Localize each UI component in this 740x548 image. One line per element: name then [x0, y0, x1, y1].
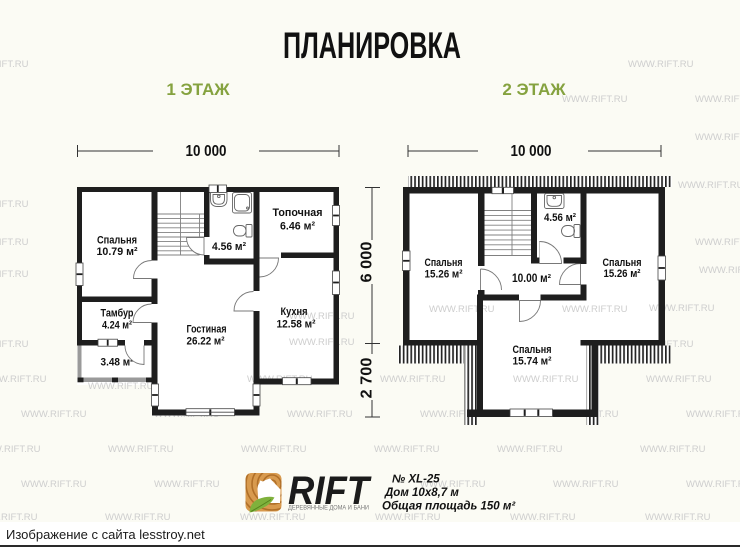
svg-text:2 ЭТАЖ: 2 ЭТАЖ — [502, 80, 566, 99]
svg-text:6.46 м²: 6.46 м² — [280, 221, 315, 233]
svg-text:3.48 м²: 3.48 м² — [101, 357, 134, 369]
svg-text:WWW.RIFT.RU: WWW.RIFT.RU — [699, 265, 740, 276]
svg-text:WWW.RIFT.RU: WWW.RIFT.RU — [240, 512, 306, 523]
svg-text:WWW.RIFT.RU: WWW.RIFT.RU — [695, 132, 740, 143]
svg-text:Тамбур: Тамбур — [101, 308, 134, 320]
svg-text:Дом 10х8,7 м: Дом 10х8,7 м — [384, 487, 459, 499]
svg-text:6 000: 6 000 — [359, 242, 376, 283]
svg-text:WWW.RIFT.RU: WWW.RIFT.RU — [628, 59, 694, 70]
svg-text:WWW.RIFT.RU: WWW.RIFT.RU — [0, 444, 41, 455]
svg-text:WWW.RIFT.RU: WWW.RIFT.RU — [646, 374, 712, 385]
svg-text:15.74 м²: 15.74 м² — [513, 356, 552, 368]
svg-text:Топочная: Топочная — [273, 207, 323, 219]
svg-text:WWW.RIFT.RU: WWW.RIFT.RU — [0, 59, 29, 70]
svg-text:WWW.RIFT.RU: WWW.RIFT.RU — [21, 409, 87, 420]
svg-text:WWW.RIFT.RU: WWW.RIFT.RU — [513, 374, 579, 385]
svg-text:WWW.RIFT.RU: WWW.RIFT.RU — [108, 444, 174, 455]
svg-text:WWW.RIFT.RU: WWW.RIFT.RU — [645, 512, 711, 523]
svg-text:№ XL-25: № XL-25 — [392, 474, 440, 486]
svg-text:15.26 м²: 15.26 м² — [425, 269, 463, 281]
svg-text:WWW.RIFT.RU: WWW.RIFT.RU — [429, 304, 495, 315]
svg-text:WWW.RIFT.RU: WWW.RIFT.RU — [0, 199, 29, 210]
svg-text:WWW.RIFT.RU: WWW.RIFT.RU — [380, 374, 446, 385]
svg-text:WWW.RIFT.RU: WWW.RIFT.RU — [0, 269, 29, 280]
svg-text:Спальня: Спальня — [97, 235, 137, 247]
svg-text:WWW.RIFT.RU: WWW.RIFT.RU — [510, 512, 576, 523]
svg-text:WWW.RIFT.RU: WWW.RIFT.RU — [678, 180, 740, 191]
svg-text:Общая площадь 150 м²: Общая площадь 150 м² — [382, 501, 516, 513]
svg-text:WWW.RIFT.RU: WWW.RIFT.RU — [686, 409, 740, 420]
svg-text:10 000: 10 000 — [186, 143, 227, 160]
svg-text:2 700: 2 700 — [359, 358, 376, 399]
svg-text:12.58 м²: 12.58 м² — [277, 319, 316, 331]
svg-text:ПЛАНИРОВКА: ПЛАНИРОВКА — [283, 25, 461, 66]
svg-text:WWW.RIFT.RU: WWW.RIFT.RU — [287, 409, 353, 420]
svg-text:15.26 м²: 15.26 м² — [604, 268, 641, 280]
svg-text:WWW.RIFT.RU: WWW.RIFT.RU — [105, 512, 171, 523]
svg-text:10.79 м²: 10.79 м² — [97, 246, 138, 258]
svg-text:WWW.RIFT.RU: WWW.RIFT.RU — [0, 339, 29, 350]
svg-text:WWW.RIFT.RU: WWW.RIFT.RU — [21, 479, 87, 490]
svg-text:WWW.RIFT.RU: WWW.RIFT.RU — [695, 237, 740, 248]
svg-text:Гостиная: Гостиная — [187, 324, 227, 336]
svg-text:WWW.RIFT.RU: WWW.RIFT.RU — [686, 479, 740, 490]
svg-text:ДЕРЕВЯННЫЕ ДОМА И БАНИ: ДЕРЕВЯННЫЕ ДОМА И БАНИ — [288, 506, 369, 512]
svg-text:Изображение с сайта lesstroy.n: Изображение с сайта lesstroy.net — [6, 527, 205, 542]
svg-text:WWW.RIFT.RU: WWW.RIFT.RU — [374, 444, 440, 455]
svg-text:WWW.RIFT.RU: WWW.RIFT.RU — [241, 444, 307, 455]
svg-text:26.22 м²: 26.22 м² — [187, 336, 225, 348]
svg-text:4.56 м²: 4.56 м² — [544, 212, 576, 224]
svg-text:10.00 м²: 10.00 м² — [512, 273, 551, 285]
svg-text:10 000: 10 000 — [511, 143, 552, 160]
svg-text:WWW.RIFT.RU: WWW.RIFT.RU — [289, 337, 355, 348]
svg-text:WWW.RIFT.RU: WWW.RIFT.RU — [375, 512, 441, 523]
svg-text:WWW.RIFT.RU: WWW.RIFT.RU — [88, 381, 154, 392]
svg-text:4.24 м²: 4.24 м² — [102, 320, 132, 332]
svg-text:WWW.RIFT.RU: WWW.RIFT.RU — [0, 374, 47, 385]
svg-text:WWW.RIFT.RU: WWW.RIFT.RU — [562, 94, 628, 105]
svg-text:WWW.RIFT.RU: WWW.RIFT.RU — [0, 237, 29, 248]
svg-text:WWW.RIFT.RU: WWW.RIFT.RU — [154, 479, 220, 490]
svg-text:4.56 м²: 4.56 м² — [212, 241, 246, 253]
svg-text:WWW.RIFT.RU: WWW.RIFT.RU — [0, 512, 38, 523]
svg-text:WWW.RIFT.RU: WWW.RIFT.RU — [695, 94, 740, 105]
svg-text:Кухня: Кухня — [281, 306, 308, 318]
svg-text:WWW.RIFT.RU: WWW.RIFT.RU — [497, 444, 563, 455]
svg-text:WWW.RIFT.RU: WWW.RIFT.RU — [553, 479, 619, 490]
svg-text:1 ЭТАЖ: 1 ЭТАЖ — [166, 80, 230, 99]
svg-text:Спальня: Спальня — [425, 257, 463, 269]
svg-text:Спальня: Спальня — [513, 344, 552, 356]
svg-text:WWW.RIFT.RU: WWW.RIFT.RU — [562, 304, 628, 315]
svg-text:WWW.RIFT.RU: WWW.RIFT.RU — [640, 444, 706, 455]
